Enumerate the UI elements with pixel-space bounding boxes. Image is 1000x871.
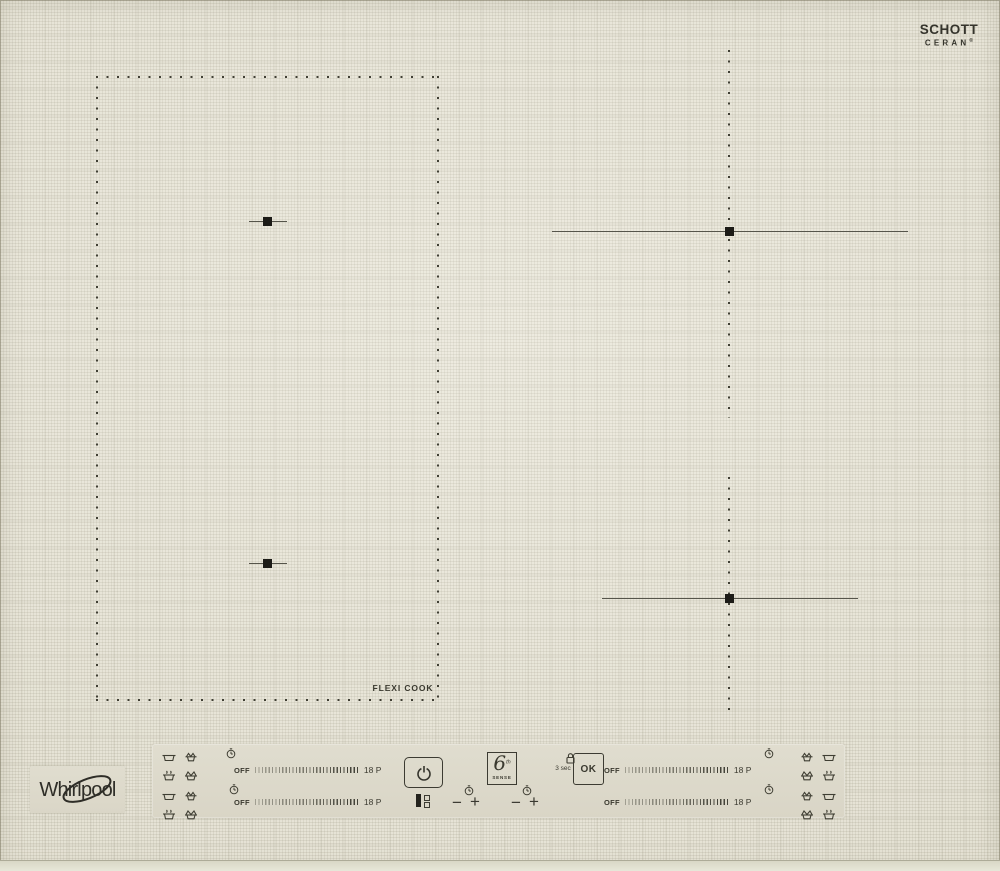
power-slider-left-top: OFF 18 P xyxy=(234,764,381,776)
slider-off-label: OFF xyxy=(604,798,620,807)
cooking-function-icons-left xyxy=(158,747,202,825)
zone-cross-line xyxy=(602,598,858,599)
power-slider-track[interactable] xyxy=(255,799,359,805)
timer-minus-button[interactable]: − xyxy=(508,793,524,813)
boil-icon[interactable] xyxy=(799,790,815,802)
slider-off-label: OFF xyxy=(234,766,250,775)
flexicook-outline-top xyxy=(96,76,439,78)
slider-max-label: 18 P xyxy=(734,797,752,807)
flexicook-outline-right xyxy=(437,76,439,701)
clock-icon xyxy=(226,748,236,759)
power-slider-left-bottom: OFF 18 P xyxy=(234,796,381,808)
slider-max-label: 18 P xyxy=(364,765,382,775)
clock-icon xyxy=(764,748,774,759)
clock-icon xyxy=(764,784,774,795)
simmer-icon[interactable] xyxy=(183,809,199,821)
zone-marker-square xyxy=(263,559,272,568)
cooktop-surface: SCHOTT CERAN® FLEXI COOK Whirlpool xyxy=(0,0,1000,871)
slider-off-label: OFF xyxy=(604,766,620,775)
timer-plus-button[interactable]: + xyxy=(526,792,542,812)
power-slider-right-bottom: OFF 18 P xyxy=(604,796,751,808)
flexicook-key[interactable] xyxy=(416,794,432,808)
zone-marker-square xyxy=(263,217,272,226)
simmer-icon[interactable] xyxy=(799,809,815,821)
zone-cross-line xyxy=(552,231,908,232)
pan-icon[interactable] xyxy=(161,790,177,802)
power-button[interactable] xyxy=(404,757,443,788)
boil-icon[interactable] xyxy=(799,751,815,763)
flexicook-label: FLEXI COOK xyxy=(360,683,446,693)
slider-max-label: 18 P xyxy=(734,765,752,775)
sixth-sense-logo: 6th sense xyxy=(487,752,517,785)
simmer-icon[interactable] xyxy=(183,770,199,782)
flexicook-outline-left xyxy=(96,76,98,701)
flexizone-cell-icon xyxy=(424,802,430,808)
slider-off-label: OFF xyxy=(234,798,250,807)
flexizone-indicator-icon xyxy=(416,794,421,807)
power-slider-right-top: OFF 18 P xyxy=(604,764,751,776)
boil-icon[interactable] xyxy=(183,790,199,802)
whirlpool-swoosh-icon xyxy=(30,766,125,813)
schott-ceran-logo-line2: CERAN® xyxy=(916,39,982,48)
boil-icon[interactable] xyxy=(183,751,199,763)
pan-icon[interactable] xyxy=(821,751,837,763)
zone-marker-square xyxy=(725,227,734,236)
ok-button[interactable]: OK xyxy=(573,753,604,785)
glass-front-bevel xyxy=(0,860,1000,871)
slider-max-label: 18 P xyxy=(364,797,382,807)
registered-mark: ® xyxy=(969,38,973,44)
schott-ceran-logo-line1: SCHOTT xyxy=(916,23,982,37)
sixth-sense-digit: 6th xyxy=(488,753,516,775)
steam-pot-icon[interactable] xyxy=(821,770,837,782)
whirlpool-logo: Whirlpool xyxy=(30,766,125,813)
schott-ceran-logo: SCHOTT CERAN® xyxy=(916,23,982,47)
zone-marker-square xyxy=(725,594,734,603)
simmer-icon[interactable] xyxy=(799,770,815,782)
zone-center-marker xyxy=(249,216,287,226)
flexicook-outline-bottom xyxy=(96,699,439,701)
pan-icon[interactable] xyxy=(821,790,837,802)
power-slider-track[interactable] xyxy=(625,799,729,805)
steam-pot-icon[interactable] xyxy=(821,809,837,821)
timer-plus-button[interactable]: + xyxy=(467,792,483,812)
flexizone-cell-icon xyxy=(424,795,430,801)
sixth-sense-word: sense xyxy=(488,775,516,780)
cooking-function-icons-right xyxy=(796,747,840,825)
steam-pot-icon[interactable] xyxy=(161,809,177,821)
power-slider-track[interactable] xyxy=(255,767,359,773)
pan-icon[interactable] xyxy=(161,751,177,763)
flexicook-zone-outline xyxy=(96,76,439,701)
power-slider-track[interactable] xyxy=(625,767,729,773)
zone-center-marker xyxy=(249,558,287,568)
steam-pot-icon[interactable] xyxy=(161,770,177,782)
clock-icon xyxy=(229,784,239,795)
timer-minus-button[interactable]: − xyxy=(449,793,465,813)
power-icon xyxy=(416,765,432,781)
